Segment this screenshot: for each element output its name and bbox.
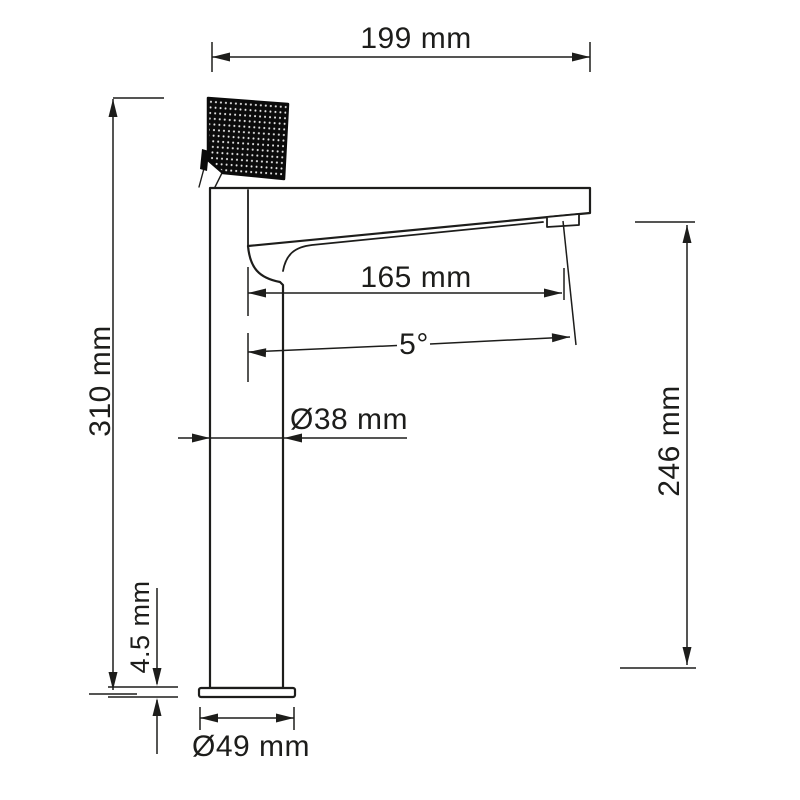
dim-spout-angle: 5°: [248, 328, 570, 361]
dim-outlet-height: 246 mm: [620, 222, 696, 668]
dim-spout-angle-ext-line: [563, 221, 576, 345]
handle-neck-right-edge: [215, 173, 222, 187]
dim-spout-reach-label: 165 mm: [360, 261, 471, 294]
dim-total-height-label: 310 mm: [84, 325, 117, 436]
faucet-body-group: [199, 98, 590, 697]
dim-top-width: 199 mm: [212, 22, 590, 72]
arrow-right-icon: [544, 289, 562, 298]
handle-knob: [208, 98, 288, 179]
dim-top-width-label: 199 mm: [360, 22, 471, 55]
arrow-left-icon: [200, 714, 218, 723]
dim-outlet-height-label: 246 mm: [653, 385, 686, 496]
dim-spout-angle-label: 5°: [399, 328, 429, 361]
faucet-dimension-diagram: 199 mm 310 mm 4.5 mm 246 mm 1: [0, 0, 800, 800]
technical-drawing-canvas: 199 mm 310 mm 4.5 mm 246 mm 1: [0, 0, 800, 800]
arrow-up-icon: [109, 99, 118, 117]
dim-spout-angle-line-right: [430, 337, 570, 344]
arrow-up-icon: [153, 698, 162, 716]
arrow-left-icon: [212, 53, 230, 62]
dim-base-thickness: 4.5 mm: [108, 580, 178, 754]
arrow-right-icon: [276, 714, 294, 723]
arrow-down-icon: [683, 647, 692, 665]
dim-base-thickness-label: 4.5 mm: [125, 580, 155, 673]
base-plate: [199, 688, 295, 697]
dim-base-diameter-label: Ø49 mm: [192, 730, 310, 763]
arrow-right-icon: [572, 53, 590, 62]
arrow-up-icon: [683, 225, 692, 243]
arrow-right-icon: [552, 333, 570, 343]
handle-knob-side-notch: [200, 149, 209, 171]
dim-body-diameter-label: Ø38 mm: [290, 403, 408, 436]
arrow-right-icon: [192, 434, 210, 443]
dim-base-diameter: Ø49 mm: [192, 707, 310, 763]
